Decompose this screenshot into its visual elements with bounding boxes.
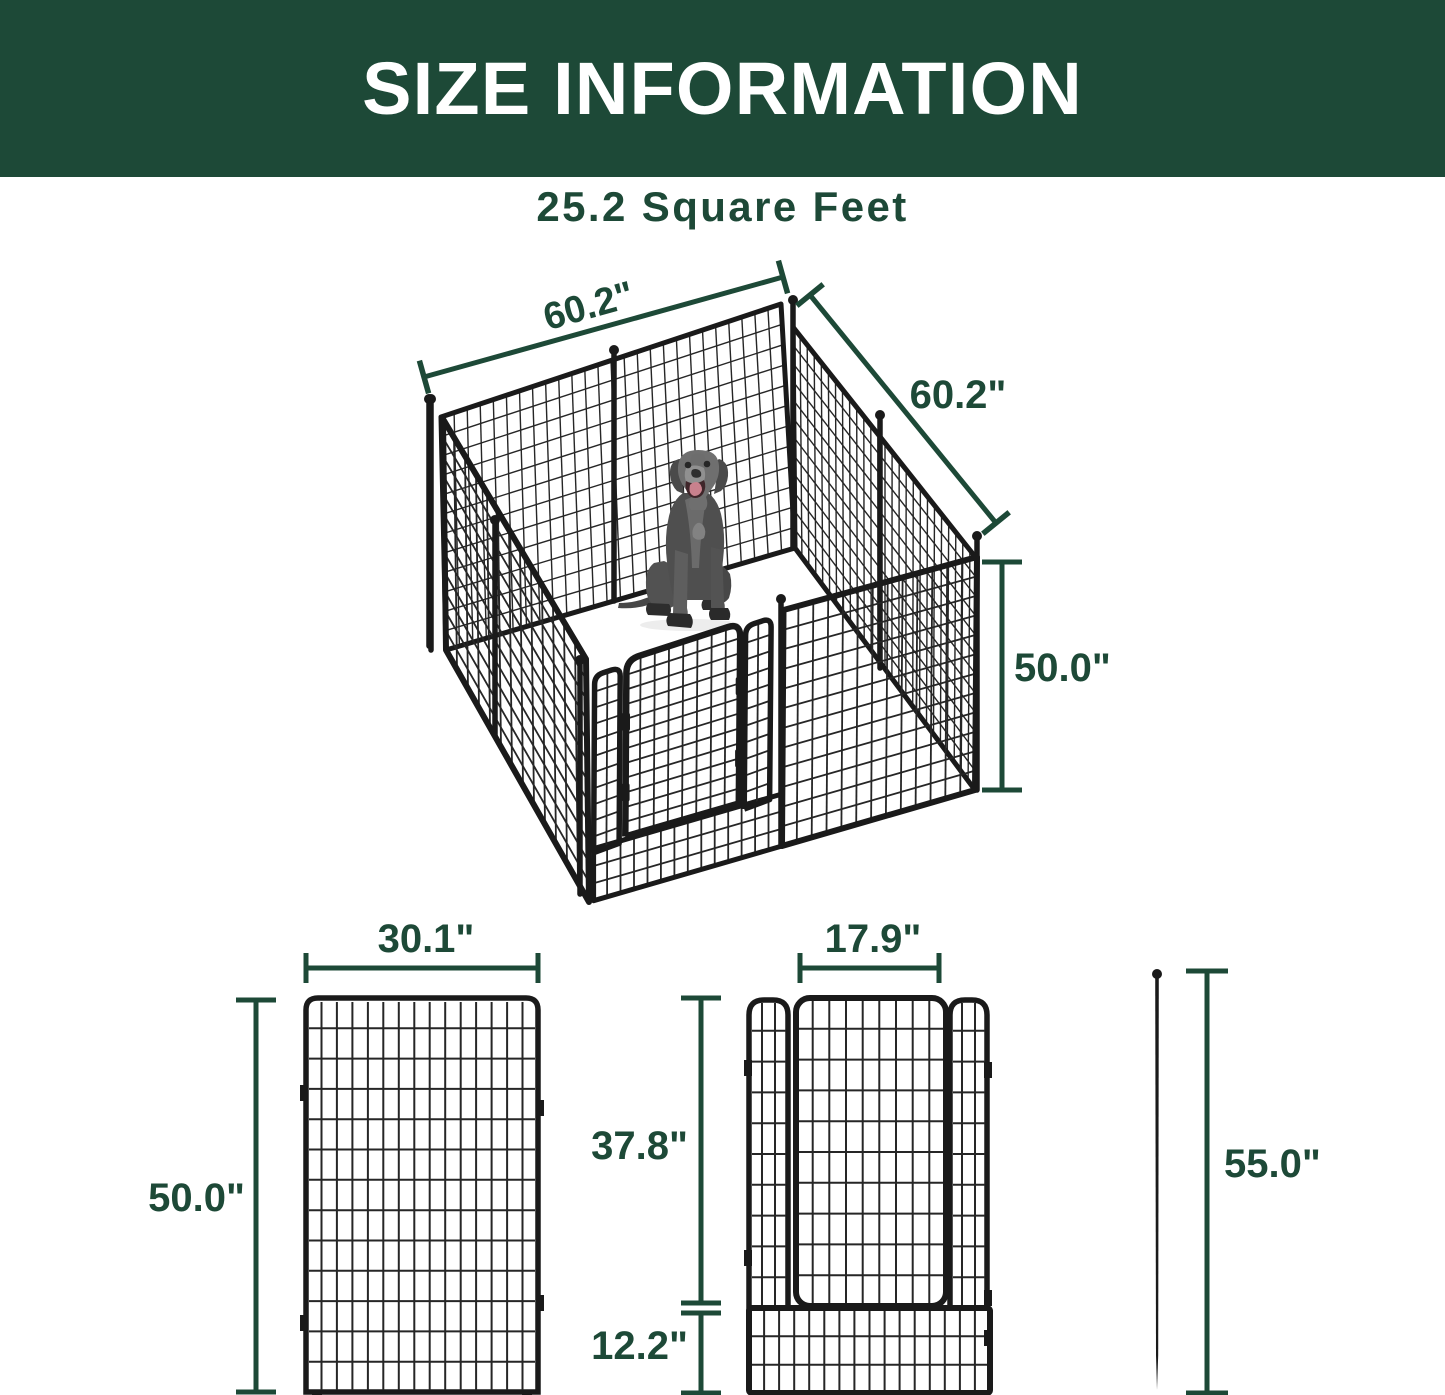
- svg-text:12.2": 12.2": [591, 1324, 688, 1368]
- svg-text:37.8": 37.8": [591, 1124, 688, 1168]
- svg-text:30.1": 30.1": [378, 917, 475, 961]
- svg-text:50.0": 50.0": [1014, 646, 1111, 690]
- svg-text:60.2": 60.2": [910, 373, 1007, 417]
- svg-text:55.0": 55.0": [1224, 1142, 1321, 1186]
- svg-text:50.0": 50.0": [148, 1176, 245, 1220]
- svg-text:17.9": 17.9": [825, 917, 922, 961]
